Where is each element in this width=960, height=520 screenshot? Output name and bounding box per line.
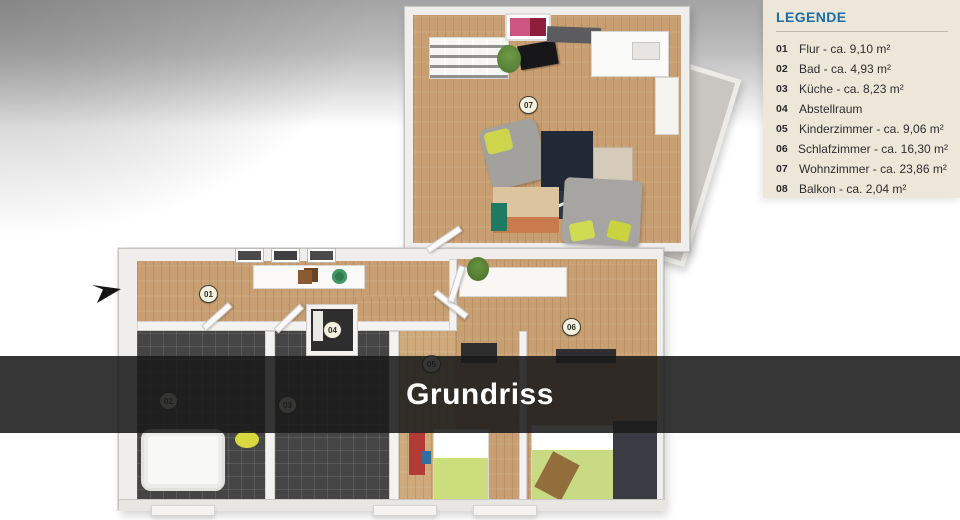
legend-row-kueche: 03 Küche - ca. 8,23 m² [776,79,948,99]
legend-label: Flur - ca. 9,10 m² [799,42,890,56]
legend-row-bad: 02 Bad - ca. 4,93 m² [776,59,948,79]
stool-yellow [235,431,259,448]
arrow-cursor-icon [92,272,122,304]
window-sill-1 [151,505,215,516]
legend-row-kinderzimmer: 05 Kinderzimmer - ca. 9,06 m² [776,119,948,139]
room-marker-flur: 01 [199,285,218,303]
legend-label: Schlafzimmer - ca. 16,30 m² [798,142,948,156]
flur-sideboard [253,265,365,289]
legend-num: 08 [776,183,799,195]
kitchen-counter-side [655,77,679,135]
sofa-pillow-1 [568,220,595,242]
wall-frame-3 [308,249,335,262]
bathtub [141,429,225,491]
deco-boxes [298,270,312,284]
window-sill-2 [373,505,437,516]
wall-frame-1 [236,249,263,262]
screenshot-stage: 01 02 03 04 05 06 07 Grundriss LEGENDE 0… [0,0,960,520]
legend-label: Bad - ca. 4,93 m² [799,62,891,76]
room-marker-schlafzimmer: 06 [562,318,581,336]
legend-row-wohnzimmer: 07 Wohnzimmer - ca. 23,86 m² [776,159,948,179]
legend-num: 07 [776,163,799,175]
window-sill-3 [473,505,537,516]
wohnzimmer-room [404,6,690,252]
room-marker-wohnzimmer: 07 [519,96,538,114]
legend-row-balkon: 08 Balkon - ca. 2,04 m² [776,179,948,199]
kind-bed [433,429,489,503]
legend-divider [776,31,948,32]
legend-num: 03 [776,83,799,95]
schlaf-wardrobe-dark [613,421,657,503]
deco-plate-green [332,269,347,284]
legend-num: 04 [776,103,799,115]
legend-row-schlafzimmer: 06 Schlafzimmer - ca. 16,30 m² [776,139,948,159]
sofa-pillow-2 [606,220,631,242]
room-marker-abstellraum: 04 [323,321,342,339]
storage-teal [491,203,507,231]
legend-row-flur: 01 Flur - ca. 9,10 m² [776,39,948,59]
wall-flur-south [137,321,457,331]
legend-num: 05 [776,123,799,135]
legend-label: Kinderzimmer - ca. 9,06 m² [799,122,944,136]
legend-row-abstellraum: 04 Abstellraum [776,99,948,119]
legend-label: Balkon - ca. 2,04 m² [799,182,906,196]
legend-num: 01 [776,43,799,55]
wall-picture-pink [505,13,551,41]
legend-panel: LEGENDE 01 Flur - ca. 9,10 m² 02 Bad - c… [763,0,960,198]
legend-num: 06 [776,143,798,155]
kind-item-blue [421,451,431,464]
page-title: Grundriss [406,378,554,412]
legend-label: Abstellraum [799,102,862,116]
legend-label: Küche - ca. 8,23 m² [799,82,904,96]
plant-wohnzimmer [497,45,521,73]
schlaf-bed [531,425,623,503]
title-overlay-band: Grundriss [0,356,960,433]
kitchen-counter [591,31,669,77]
pillow-yellow [483,128,514,156]
sofa [561,177,642,247]
legend-header: LEGENDE [776,9,948,25]
legend-label: Wohnzimmer - ca. 23,86 m² [799,162,947,176]
top-left-gradient [0,0,420,270]
legend-num: 02 [776,63,799,75]
plant-schlafzimmer [467,257,489,281]
wall-frame-2 [272,249,299,262]
